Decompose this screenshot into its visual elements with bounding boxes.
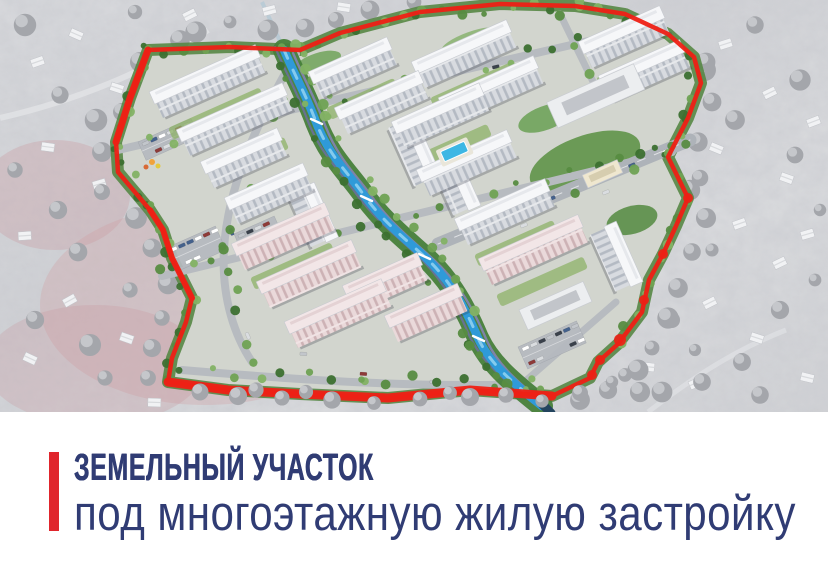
render-shape (753, 387, 763, 397)
render-shape (94, 143, 105, 154)
render-shape (727, 111, 738, 122)
render-shape (413, 213, 419, 219)
render-shape (276, 62, 285, 71)
render-shape (379, 194, 389, 204)
render-shape (225, 225, 234, 234)
render-shape (465, 341, 475, 351)
render-shape (335, 135, 341, 141)
render-shape (176, 367, 183, 374)
render-shape (492, 372, 500, 380)
render-shape (8, 163, 17, 172)
render-shape (123, 283, 131, 291)
render-shape (639, 295, 649, 305)
aerial-render-canvas (0, 0, 828, 412)
render-shape (566, 167, 572, 173)
render-shape (653, 383, 664, 394)
render-shape (258, 374, 267, 383)
render-shape (250, 383, 258, 391)
render-shape (381, 380, 391, 390)
render-shape (311, 135, 318, 142)
render-shape (684, 72, 692, 80)
render-shape (734, 354, 744, 364)
render-shape (332, 167, 340, 175)
render-shape (436, 203, 444, 211)
render-shape (367, 176, 374, 183)
render-shape (193, 384, 202, 393)
render-shape (374, 221, 382, 229)
render-shape (155, 311, 163, 319)
render-shape (358, 376, 364, 382)
render-shape (172, 31, 183, 42)
render-shape (458, 328, 468, 338)
render-shape (81, 335, 93, 347)
render-shape (132, 171, 140, 179)
render-shape (18, 231, 32, 240)
render-shape (748, 17, 758, 27)
render-shape (489, 189, 498, 198)
render-shape (289, 97, 299, 107)
render-shape (690, 345, 697, 352)
render-shape (810, 274, 817, 281)
render-shape (282, 76, 288, 82)
page-subtitle: под многоэтажную жилую застройку (74, 489, 796, 540)
render-shape (219, 244, 229, 254)
render-shape (276, 391, 284, 399)
render-shape (70, 244, 80, 254)
render-shape (629, 361, 641, 373)
render-shape (631, 383, 642, 394)
render-shape (693, 171, 702, 180)
render-shape (646, 341, 654, 349)
render-shape (148, 398, 161, 407)
render-shape (457, 10, 467, 20)
render-shape (230, 388, 240, 398)
render-shape (427, 243, 437, 253)
render-shape (619, 369, 627, 377)
render-shape (409, 223, 419, 233)
render-shape (306, 369, 313, 376)
render-shape (129, 6, 137, 14)
render-shape (15, 15, 27, 27)
render-shape (772, 302, 782, 312)
render-shape (368, 397, 376, 405)
render-shape (476, 351, 483, 358)
render-shape (141, 371, 150, 380)
render-shape (555, 11, 565, 21)
render-shape (528, 375, 535, 382)
presentation-slide: ЗЕМЕЛЬНЫЙ УЧАСТОК под многоэтажную жилую… (0, 0, 828, 585)
render-shape (681, 140, 690, 149)
render-shape (50, 202, 60, 212)
render-shape (414, 392, 422, 400)
render-shape (99, 371, 107, 379)
render-shape (685, 244, 695, 254)
render-shape (459, 374, 468, 383)
render-shape (352, 199, 362, 209)
render-shape (249, 359, 257, 367)
render-shape (360, 372, 367, 376)
render-shape (483, 67, 489, 73)
render-shape (53, 87, 62, 96)
render-shape (210, 365, 216, 371)
render-shape (297, 20, 307, 30)
render-shape (362, 2, 372, 12)
render-shape (320, 111, 331, 122)
render-shape (127, 208, 139, 220)
render-shape (815, 204, 822, 211)
render-shape (587, 370, 597, 380)
render-shape (339, 177, 348, 186)
render-shape (224, 268, 232, 276)
render-shape (481, 11, 487, 17)
render-shape (607, 376, 614, 383)
render-shape (438, 255, 446, 263)
render-shape (683, 193, 693, 203)
render-shape (27, 312, 37, 322)
render-shape (337, 2, 351, 12)
render-shape (318, 99, 329, 110)
render-shape (524, 44, 532, 52)
render-shape (230, 305, 240, 315)
render-shape (300, 352, 307, 356)
render-shape (595, 355, 605, 365)
render-shape (548, 46, 556, 54)
render-shape (187, 22, 199, 34)
render-shape (469, 306, 480, 317)
render-shape (144, 239, 154, 249)
render-shape (652, 145, 658, 151)
render-shape (704, 94, 714, 104)
render-shape (697, 209, 708, 220)
render-shape (190, 260, 198, 268)
render-shape (300, 352, 307, 356)
render-shape (706, 244, 713, 251)
render-shape (585, 69, 595, 79)
render-shape (573, 386, 582, 395)
render-shape (329, 13, 338, 22)
render-shape (694, 374, 704, 384)
render-shape (360, 372, 367, 376)
render-shape (259, 21, 271, 33)
render-shape (233, 285, 242, 294)
render-shape (393, 213, 401, 221)
render-shape (356, 222, 366, 232)
render-shape (574, 33, 582, 41)
render-shape (325, 392, 335, 402)
render-shape (242, 340, 251, 349)
render-shape (670, 279, 681, 290)
render-shape (156, 164, 161, 169)
page-title: ЗЕМЕЛЬНЫЙ УЧАСТОК (74, 448, 374, 490)
render-shape (86, 110, 98, 122)
accent-bar (49, 452, 59, 531)
render-shape (614, 334, 626, 346)
render-shape (321, 157, 332, 168)
aerial-render (0, 0, 828, 412)
render-shape (382, 232, 391, 241)
render-shape (230, 373, 239, 382)
render-shape (41, 142, 55, 152)
render-shape (225, 16, 232, 23)
render-shape (146, 134, 153, 141)
render-shape (658, 249, 668, 259)
render-shape (570, 42, 578, 50)
render-shape (444, 387, 452, 395)
render-shape (407, 370, 417, 380)
render-shape (95, 185, 104, 194)
render-shape (170, 139, 179, 148)
render-shape (536, 395, 543, 402)
render-shape (144, 340, 154, 350)
caption: ЗЕМЕЛЬНЫЙ УЧАСТОК под многоэтажную жилую… (0, 412, 828, 585)
render-shape (327, 375, 337, 385)
render-shape (635, 149, 645, 159)
render-shape (149, 159, 155, 165)
render-shape (482, 363, 490, 371)
render-shape (791, 70, 803, 82)
render-shape (155, 264, 165, 274)
render-shape (275, 368, 284, 377)
render-shape (300, 386, 308, 394)
render-shape (207, 257, 214, 264)
render-shape (659, 308, 671, 320)
render-shape (629, 164, 639, 174)
render-shape (570, 189, 579, 198)
render-shape (499, 388, 508, 397)
render-shape (451, 275, 460, 284)
render-shape (788, 147, 797, 156)
render-shape (462, 389, 472, 399)
render-shape (432, 378, 441, 387)
render-shape (513, 180, 519, 186)
render-shape (144, 165, 149, 170)
render-shape (368, 186, 378, 196)
render-shape (441, 238, 448, 245)
render-shape (302, 101, 309, 108)
